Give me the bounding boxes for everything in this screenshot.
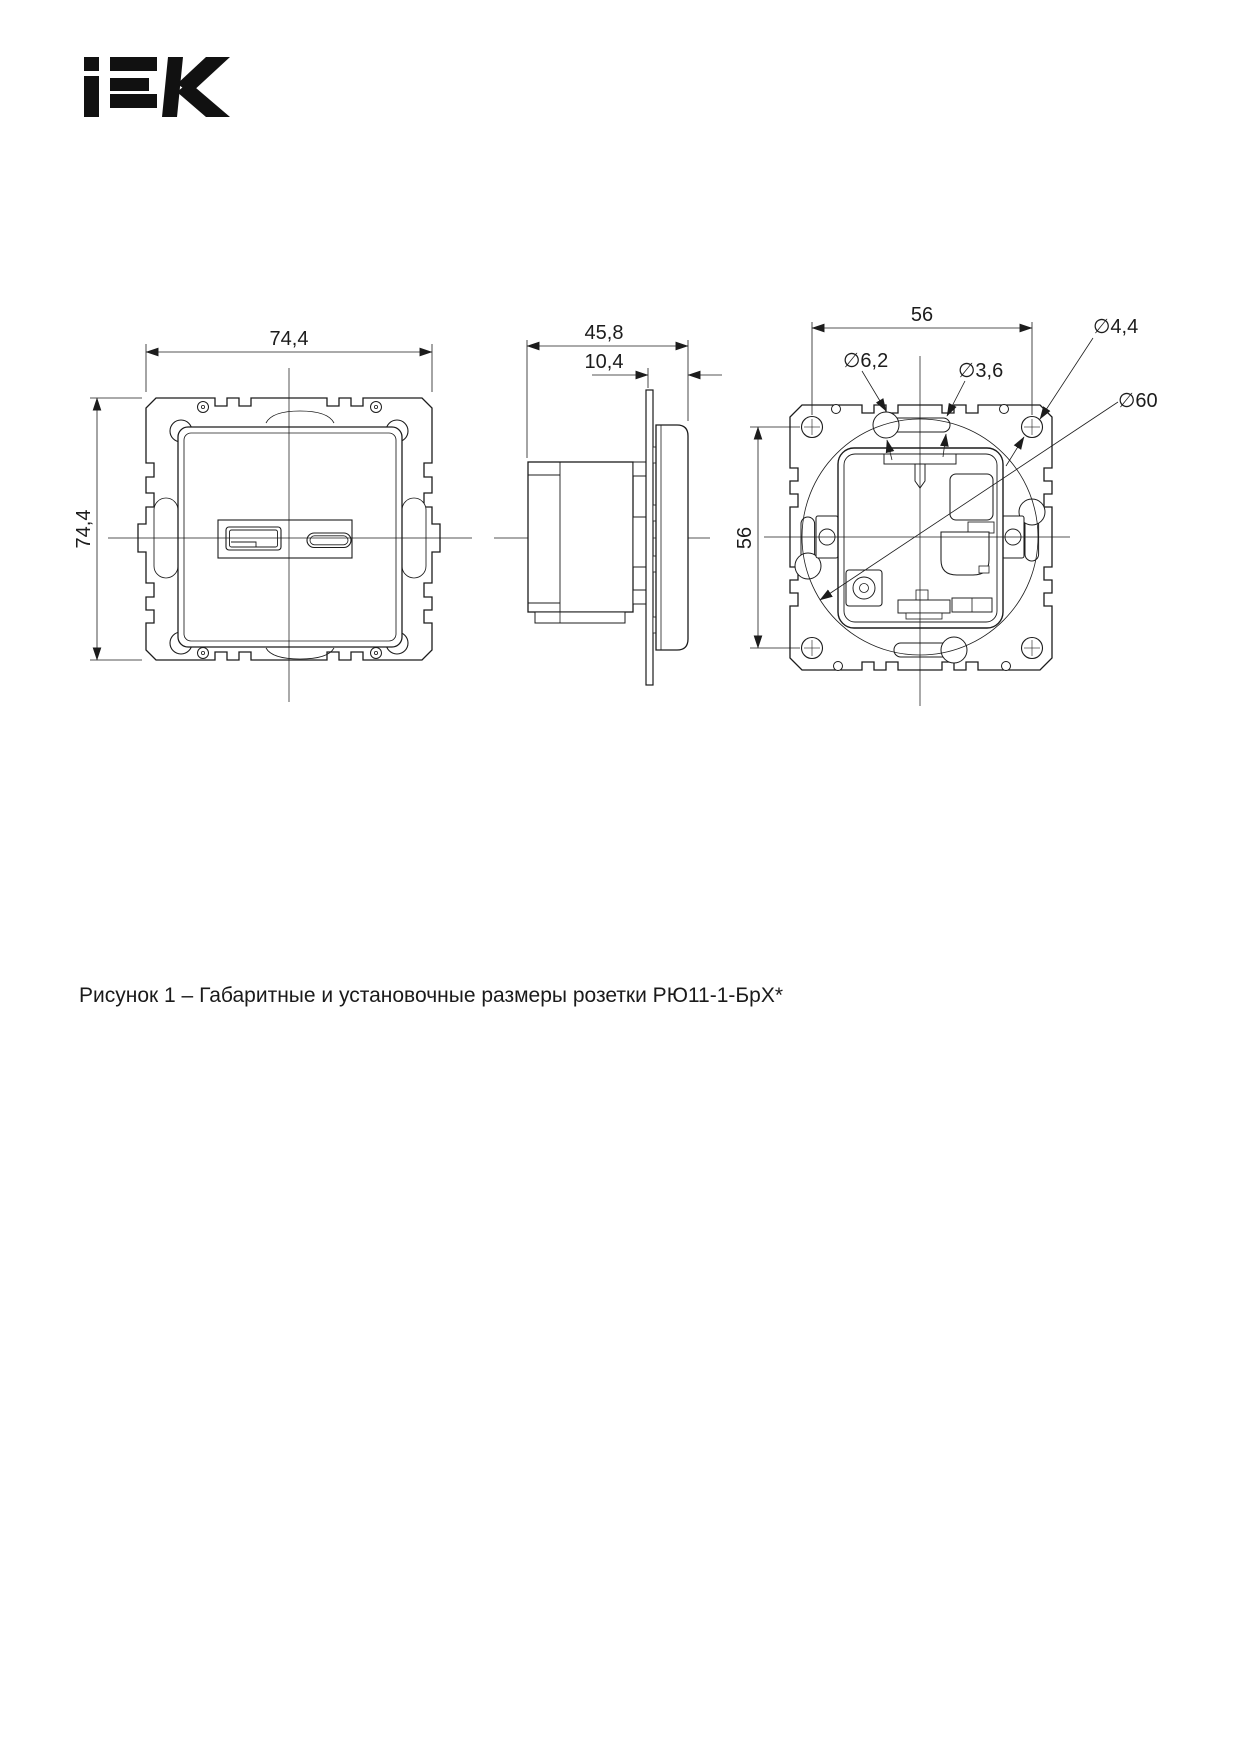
logo-e-mid-bar [110,78,149,91]
rear-bottom-bracket [898,600,950,613]
logo-e-bottom-bar [110,94,157,108]
usb-ports-block [218,520,352,558]
dim-rear-screw-hole-dia: ∅4,4 [1093,316,1138,338]
logo-i-dot [84,57,99,71]
brand-logo-iek [84,57,230,117]
dim-side-depth: 45,8 [585,322,624,344]
rear-usb-a-module [950,474,993,520]
front-view-drawing: 74,4 74,4 [73,328,472,702]
technical-drawing: 74,4 74,4 [0,0,1244,1748]
dim-rear-slot-dia: ∅6,2 [843,350,888,372]
rear-right-tab [968,522,994,533]
dim-front-width: 74,4 [270,328,309,350]
logo-e-top-bar [110,57,157,71]
side-bottom-claw [535,612,625,623]
side-view-drawing: 45,8 10,4 [494,322,722,685]
figure-caption: Рисунок 1 – Габаритные и установочные ра… [79,984,783,1008]
side-mechanism-box [528,462,633,612]
side-dimensions: 45,8 10,4 [527,322,722,458]
dim-rear-hole-spacing-h: 56 [911,304,933,326]
dim-rear-install-dia: ∅60 [1118,390,1158,412]
dim-rear-hole-spacing-v: 56 [734,527,756,549]
document-page: 74,4 74,4 [0,0,1244,1748]
logo-i-stem [84,76,99,117]
logo-k-stem [162,57,183,117]
rear-terminal-block [846,570,882,606]
dim-front-height: 74,4 [73,510,95,549]
rear-view-drawing: 56 56 ∅6,2 ∅3,6 ∅4,4 ∅60 [734,304,1158,706]
dim-rear-slot-narrow-dia: ∅3,6 [958,360,1003,382]
dim-side-face-depth: 10,4 [585,351,624,373]
side-strap-plate [646,390,653,685]
logo-k-lower-arm [177,82,230,117]
